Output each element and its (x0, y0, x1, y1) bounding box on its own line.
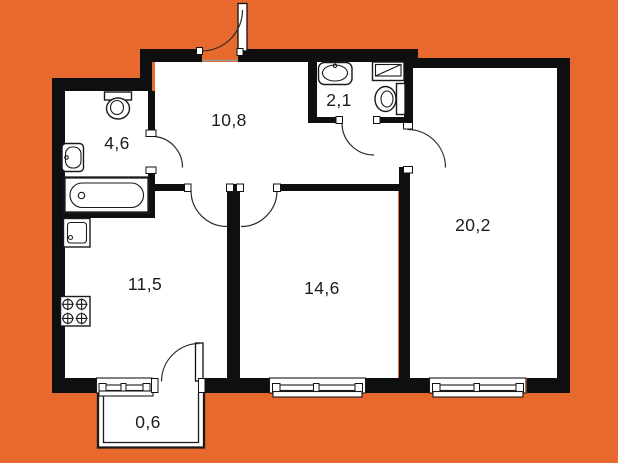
kitchen-door-opening (191, 184, 227, 192)
wc-toilet-icon (375, 84, 405, 115)
room-label-kitchen: 11,5 (128, 274, 162, 294)
bedroom-door-opening (241, 184, 277, 192)
bedroom-window-icon (270, 378, 366, 397)
wc-sink-icon (319, 63, 353, 85)
bathroom-sink-icon (62, 144, 84, 172)
wc-door-opening (342, 116, 374, 124)
living-door-opening (403, 129, 414, 167)
bathroom-door-opening (148, 136, 156, 167)
floor-plan-canvas: 4,6 10,8 2,1 20,2 11,5 14,6 0,6 (0, 0, 618, 463)
kitchen-window-icon (97, 378, 154, 396)
living-window-icon (430, 378, 527, 397)
washing-machine-icon (373, 62, 405, 81)
stove-icon (61, 297, 91, 327)
kitchen-sink-icon (64, 219, 91, 248)
balcony-door-leaf (196, 343, 204, 381)
room-label-living: 20,2 (455, 215, 491, 235)
room-label-bathroom: 4,6 (104, 133, 130, 153)
room-hallway-floor-east (308, 123, 405, 185)
room-label-wc: 2,1 (326, 90, 352, 110)
bathroom-toilet-icon (105, 92, 132, 119)
floor-plan: 4,6 10,8 2,1 20,2 11,5 14,6 0,6 (0, 0, 618, 463)
room-label-hallway: 10,8 (211, 110, 247, 130)
room-label-balcony: 0,6 (135, 412, 161, 432)
room-label-bedroom: 14,6 (304, 278, 340, 298)
